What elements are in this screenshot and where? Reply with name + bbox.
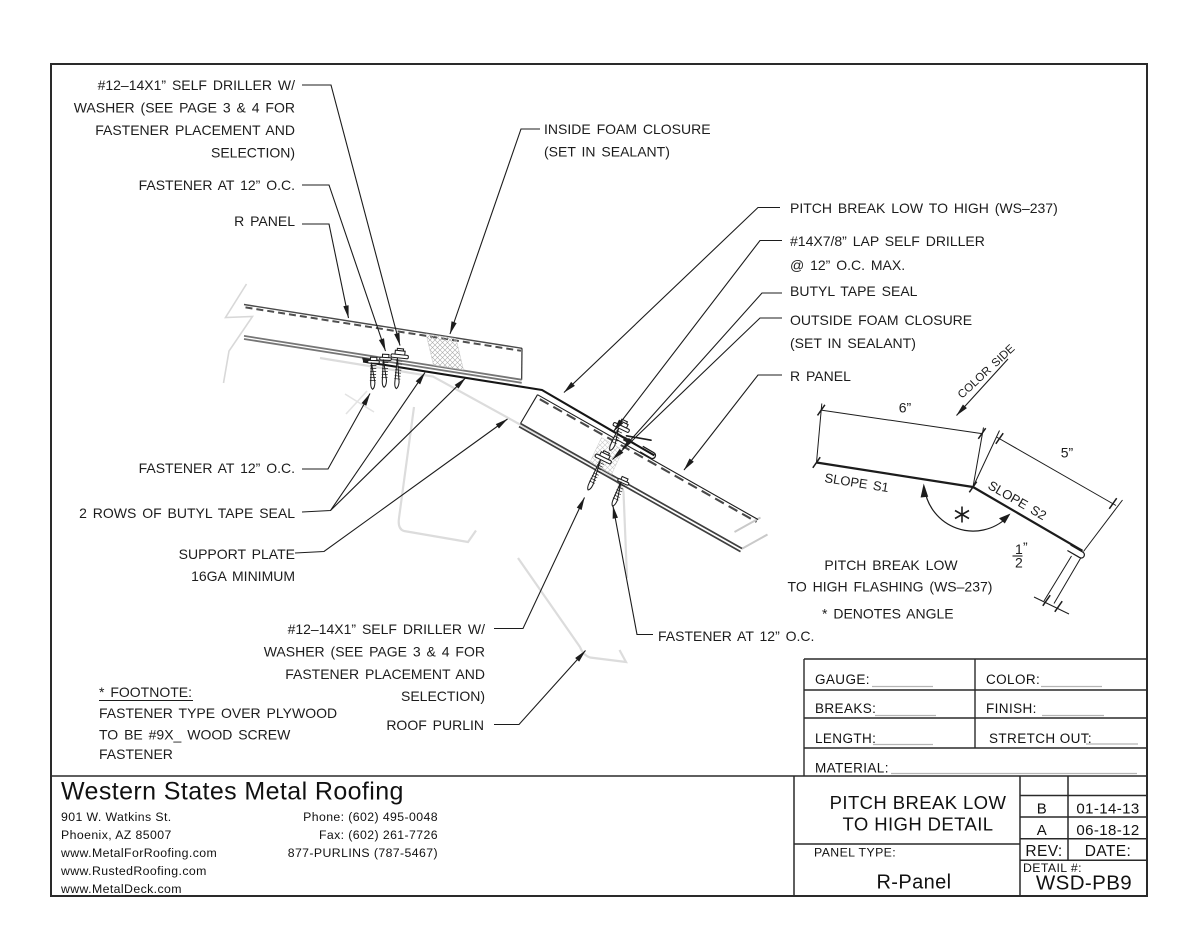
svg-text:”: ” — [1023, 539, 1028, 555]
svg-text:COLOR:: COLOR: — [986, 672, 1040, 687]
svg-text:TO BE #9X_ WOOD SCREW: TO BE #9X_ WOOD SCREW — [99, 727, 291, 743]
svg-text:R PANEL: R PANEL — [790, 368, 851, 384]
svg-text:MATERIAL:: MATERIAL: — [815, 761, 889, 776]
svg-text:PITCH BREAK LOW: PITCH BREAK LOW — [824, 557, 958, 573]
svg-text:www.MetalDeck.com: www.MetalDeck.com — [60, 882, 182, 896]
svg-text:PANEL TYPE:: PANEL TYPE: — [814, 846, 896, 860]
svg-text:www.RustedRoofing.com: www.RustedRoofing.com — [60, 864, 207, 878]
svg-text:FASTENER AT 12” O.C.: FASTENER AT 12” O.C. — [139, 460, 295, 476]
svg-text:PITCH BREAK LOW: PITCH BREAK LOW — [830, 792, 1007, 813]
svg-text:BUTYL TAPE SEAL: BUTYL TAPE SEAL — [790, 283, 918, 299]
svg-text:5”: 5” — [1061, 445, 1074, 461]
svg-text:DATE:: DATE: — [1085, 843, 1132, 860]
svg-text:#12–14X1” SELF DRILLER W/: #12–14X1” SELF DRILLER W/ — [288, 621, 486, 637]
svg-text:@ 12” O.C. MAX.: @ 12” O.C. MAX. — [790, 257, 905, 273]
svg-text:877-PURLINS (787-5467): 877-PURLINS (787-5467) — [288, 846, 438, 860]
svg-text:INSIDE FOAM CLOSURE: INSIDE FOAM CLOSURE — [544, 121, 711, 137]
svg-text:SELECTION): SELECTION) — [211, 145, 295, 161]
svg-text:16GA MINIMUM: 16GA MINIMUM — [191, 568, 295, 584]
svg-text:06-18-12: 06-18-12 — [1076, 822, 1139, 839]
svg-text:TO HIGH DETAIL: TO HIGH DETAIL — [843, 814, 994, 835]
svg-text:FASTENER AT 12” O.C.: FASTENER AT 12” O.C. — [139, 177, 295, 193]
svg-text:FASTENER: FASTENER — [99, 746, 173, 762]
svg-text:FASTENER PLACEMENT AND: FASTENER PLACEMENT AND — [285, 666, 485, 682]
svg-text:Western States Metal Roofing: Western States Metal Roofing — [61, 778, 404, 806]
svg-text:SUPPORT PLATE: SUPPORT PLATE — [179, 546, 295, 562]
svg-text:01-14-13: 01-14-13 — [1076, 801, 1139, 818]
svg-text:R-Panel: R-Panel — [876, 872, 951, 894]
svg-text:#14X7/8” LAP SELF DRILLER: #14X7/8” LAP SELF DRILLER — [790, 233, 985, 249]
svg-text:REV:: REV: — [1025, 843, 1062, 860]
svg-text:TO HIGH FLASHING (WS–237): TO HIGH FLASHING (WS–237) — [788, 579, 993, 595]
svg-text:ROOF PURLIN: ROOF PURLIN — [386, 717, 484, 733]
svg-text:#12–14X1” SELF DRILLER W/: #12–14X1” SELF DRILLER W/ — [98, 77, 296, 93]
svg-text:2: 2 — [1015, 555, 1023, 571]
svg-text:GAUGE:: GAUGE: — [815, 672, 870, 687]
svg-text:(SET IN SEALANT): (SET IN SEALANT) — [790, 335, 916, 351]
svg-text:WASHER (SEE PAGE 3 & 4 FOR: WASHER (SEE PAGE 3 & 4 FOR — [264, 644, 485, 660]
svg-text:PITCH BREAK LOW TO HIGH (WS–23: PITCH BREAK LOW TO HIGH (WS–237) — [790, 200, 1058, 216]
svg-text:* FOOTNOTE:: * FOOTNOTE: — [99, 684, 192, 700]
svg-text:B: B — [1037, 801, 1047, 818]
svg-text:A: A — [1037, 822, 1047, 839]
svg-text:www.MetalForRoofing.com: www.MetalForRoofing.com — [60, 846, 217, 860]
svg-text:BREAKS:: BREAKS: — [815, 701, 876, 716]
svg-text:FASTENER TYPE OVER PLYWOOD: FASTENER TYPE OVER PLYWOOD — [99, 705, 337, 721]
svg-text:FASTENER AT 12” O.C.: FASTENER AT 12” O.C. — [658, 628, 814, 644]
svg-text:Phoenix, AZ 85007: Phoenix, AZ 85007 — [61, 828, 172, 842]
svg-text:R PANEL: R PANEL — [234, 213, 295, 229]
svg-text:6”: 6” — [899, 400, 912, 416]
svg-text:WSD-PB9: WSD-PB9 — [1036, 872, 1132, 895]
svg-text:OUTSIDE FOAM CLOSURE: OUTSIDE FOAM CLOSURE — [790, 312, 972, 328]
svg-text:SELECTION): SELECTION) — [401, 688, 485, 704]
svg-text:WASHER (SEE PAGE 3 & 4 FOR: WASHER (SEE PAGE 3 & 4 FOR — [74, 100, 295, 116]
svg-text:(SET IN SEALANT): (SET IN SEALANT) — [544, 144, 670, 160]
svg-text:901 W. Watkins St.: 901 W. Watkins St. — [61, 810, 172, 824]
svg-text:LENGTH:: LENGTH: — [815, 731, 876, 746]
svg-text:STRETCH OUT:: STRETCH OUT: — [989, 731, 1092, 746]
svg-text:FINISH:: FINISH: — [986, 701, 1037, 716]
svg-text:FASTENER PLACEMENT AND: FASTENER PLACEMENT AND — [95, 122, 295, 138]
svg-text:2 ROWS OF BUTYL TAPE SEAL: 2 ROWS OF BUTYL TAPE SEAL — [79, 505, 295, 521]
svg-text:Fax: (602) 261-7726: Fax: (602) 261-7726 — [319, 828, 438, 842]
svg-text:* DENOTES ANGLE: * DENOTES ANGLE — [822, 606, 954, 622]
svg-text:Phone: (602) 495-0048: Phone: (602) 495-0048 — [303, 810, 438, 824]
